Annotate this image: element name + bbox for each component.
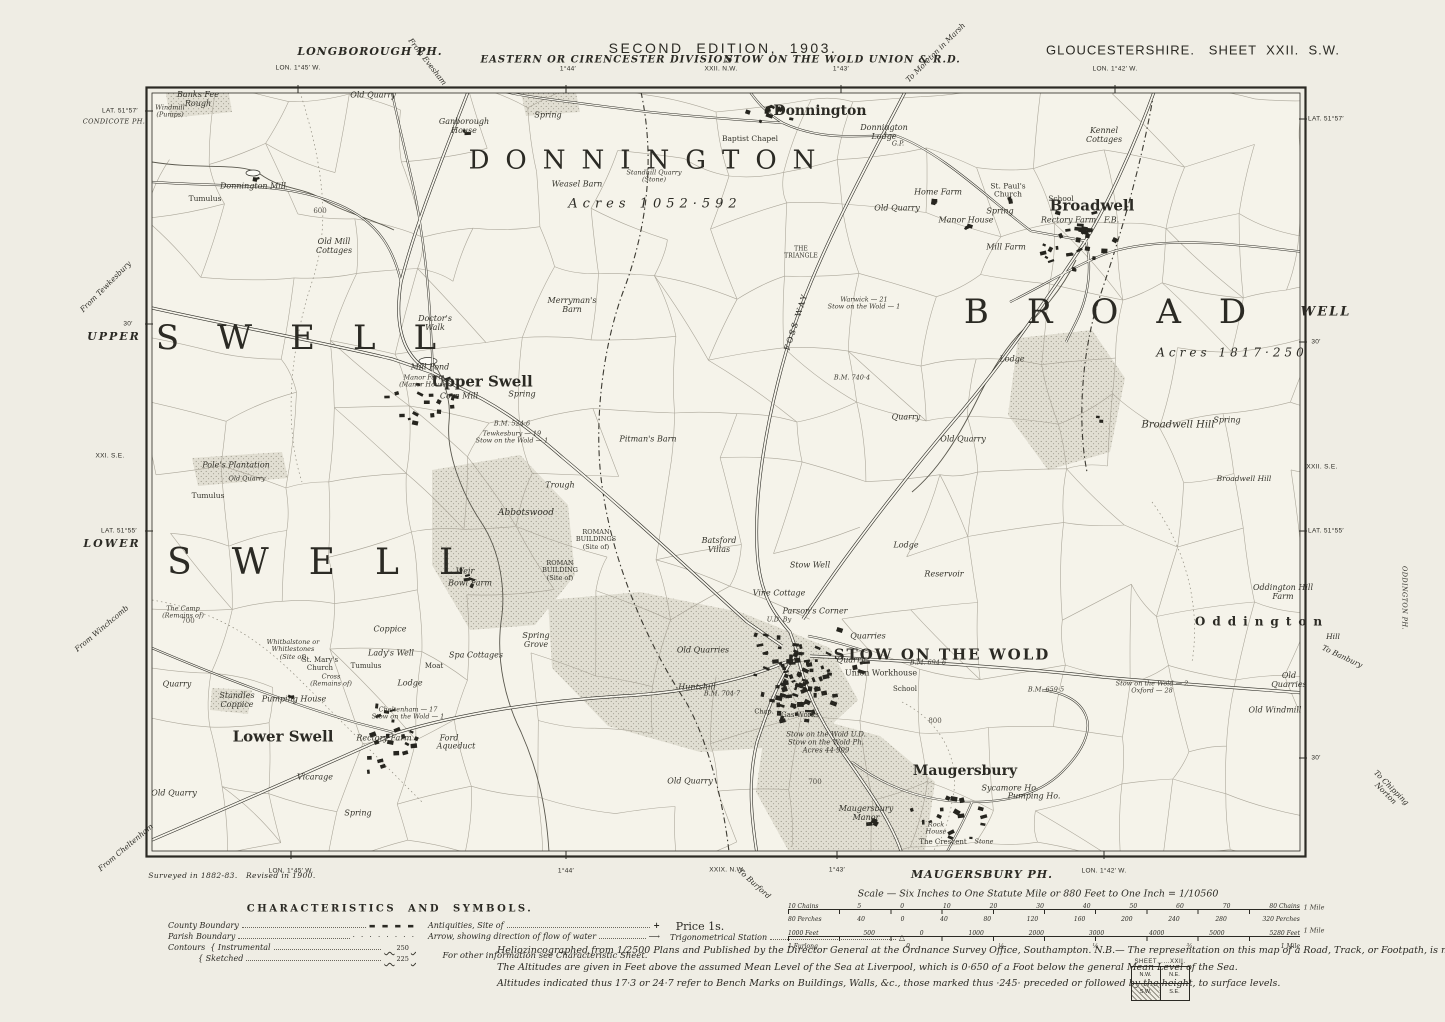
- scale-tick-0: 0: [901, 916, 905, 923]
- label-g-p: G.P.: [892, 140, 904, 147]
- label-batsford-villas: Batsford Villas: [702, 537, 737, 555]
- scale-tick-70: 70: [1223, 903, 1231, 910]
- label-old-quarries: Old Quarries: [1271, 672, 1307, 690]
- label-lat-51-55: LAT. 51°55′: [1308, 527, 1344, 534]
- footer-note-2: The Altitudes are given in Feet above th…: [497, 962, 1427, 973]
- legend-label: Arrow, showing direction of flow of wate…: [428, 932, 596, 941]
- label-chap: Chap.: [754, 708, 773, 715]
- legend-label: Contours { Instrumental: [168, 943, 271, 952]
- label-spring-grove: Spring Grove: [522, 632, 549, 650]
- scale-tick-4000: 4000: [1149, 930, 1164, 937]
- scale-tick-320-perches: 320 Perches: [1262, 916, 1299, 923]
- label-merryman-s-barn: Merryman's Barn: [548, 297, 597, 315]
- scale-tick-80-chains: 80 Chains: [1269, 903, 1299, 910]
- label-bowl-farm: Bowl Farm: [448, 580, 492, 589]
- sheet-index-diagram: SHEET……XXII. N.W.N.E. S.W.S.E.: [1128, 959, 1192, 1001]
- label-ganborough-house: Ganborough House: [439, 118, 489, 136]
- scale-tick-30: 30: [1036, 903, 1044, 910]
- label-old-quarry: Old Quarry: [940, 436, 985, 445]
- label-aqueduct: Aqueduct: [437, 743, 476, 752]
- label-lat-51-57: LAT. 51°57′: [1308, 115, 1344, 122]
- label-weasel-barn: Weasel Barn: [552, 181, 603, 190]
- label-acres-1052-592: Acres 1052·592: [568, 198, 741, 213]
- legend-symbol-parish-dots: · · · · · · · ·: [353, 932, 416, 941]
- label-cheltenham-17-stow-on-the-wold-1: Cheltenham — 17 Stow on the Wold — 1: [372, 707, 445, 722]
- scale-title: Scale — Six Inches to One Statute Mile o…: [858, 890, 1219, 901]
- label-600: 600: [313, 208, 326, 216]
- label-broad: BROAD: [964, 293, 1284, 331]
- legend-symbol-county-dash: ▬ ▬ ▬ ▬: [369, 921, 416, 930]
- label-abbotswood: Abbotswood: [498, 508, 554, 518]
- sheet-cell-nw: N.W.: [1131, 967, 1160, 984]
- scale-tick-40: 40: [940, 916, 948, 923]
- legend-leader: [507, 927, 651, 928]
- label-coppice: Coppice: [374, 626, 407, 635]
- label-tewkesbury-19-stow-on-the-wold-1: Tewkesbury — 19 Stow on the Wold — 1: [476, 431, 549, 446]
- legend-leader: [242, 927, 366, 928]
- scale-tick-500: 500: [863, 930, 874, 937]
- label-manor-farm-manor-house: Manor Farm (Manor House): [399, 375, 449, 390]
- label-old-mill-cottages: Old Mill Cottages: [316, 238, 352, 256]
- label-pole-s-plantation: Pole's Plantation: [202, 462, 270, 471]
- legend-label: Antiquities, Site of: [428, 921, 504, 930]
- scale-tick-0: 0: [900, 903, 904, 910]
- label-30: 30′: [123, 320, 132, 327]
- label-upper: UPPER: [87, 331, 141, 343]
- legend-leader: [246, 960, 381, 961]
- label-parson-s-corner: Parson's Corner: [782, 608, 847, 617]
- label-kennel-cottages: Kennel Cottages: [1086, 127, 1122, 145]
- label-donnington-mill: Donnington Mill: [220, 183, 286, 192]
- label-1-44: 1°44′: [558, 867, 574, 874]
- label-30: 30′: [1311, 338, 1320, 345]
- label-baptist-chapel: Baptist Chapel: [722, 135, 778, 143]
- label-1-43: 1°43′: [833, 65, 849, 72]
- label-vine-cottage: Vine Cottage: [753, 590, 806, 599]
- legend-row-antiquities-site-of: Antiquities, Site of+: [428, 919, 660, 930]
- label-lon-1-45-w: LON. 1°45′ W.: [269, 867, 314, 874]
- scale-feet-labels: 1000 Feet5000100020003000400050005280 Fe…: [788, 928, 1300, 936]
- label-lower: LOWER: [83, 538, 140, 550]
- label-stow-on-the-wold-2-oxford-28: Stow on the Wold — 2 Oxford — 28: [1116, 681, 1189, 696]
- label-union-workhouse: Union Workhouse: [845, 670, 917, 679]
- scale-tick-5280-feet: 5280 Feet: [1269, 930, 1300, 937]
- legend-label: County Boundary: [168, 921, 239, 930]
- label-lodge: Lodge: [893, 542, 918, 551]
- label-old-quarry: Old Quarry: [350, 92, 395, 101]
- label-condicote-ph: CONDICOTE PH.: [83, 118, 146, 125]
- parish-bottom-label: MAUGERSBURY PH.: [911, 869, 1053, 881]
- scale-tick-240: 240: [1168, 916, 1179, 923]
- label-cross-remains-of: Cross (Remains of): [310, 674, 352, 689]
- legend-title: CHARACTERISTICS AND SYMBOLS.: [247, 903, 533, 914]
- scale-tick-50: 50: [1130, 903, 1138, 910]
- label-swell: SWELL: [167, 543, 503, 583]
- label-old-quarry: Old Quarry: [229, 475, 266, 482]
- scale-tick-5000: 5000: [1209, 930, 1224, 937]
- label-1-44: 1°44′: [560, 65, 576, 72]
- label-vicarage: Vicarage: [297, 774, 333, 783]
- legend-row-parish-boundary: Parish Boundary· · · · · · · ·: [168, 930, 416, 941]
- map-content-layer: [132, 73, 1383, 878]
- scale-tick-10-chains: 10 Chains: [788, 903, 818, 910]
- label-pitman-s-barn: Pitman's Barn: [619, 436, 676, 445]
- label-pumping-ho: Pumping Ho.: [1008, 793, 1061, 802]
- label-b-m-694-6: B.M. 694·6: [910, 659, 946, 666]
- label-spring: Spring: [344, 810, 371, 819]
- label-lon-1-42-w: LON. 1°42′ W.: [1082, 867, 1127, 874]
- label-quarry: Quarry: [837, 657, 866, 666]
- label-mill-pond: Mill Pond: [411, 364, 450, 373]
- scale-tick-60: 60: [1176, 903, 1184, 910]
- legend-symbol-antiquity-cross: +: [653, 920, 660, 930]
- label-pumping-house: Pumping House: [262, 696, 326, 705]
- label-lodge: Lodge: [397, 680, 422, 689]
- label-old-quarry: Old Quarry: [667, 778, 712, 787]
- scale-tick-40: 40: [857, 916, 865, 923]
- label-quarry: Quarry: [892, 414, 921, 423]
- label-tumulus: Tumulus: [189, 195, 222, 203]
- label-standles-coppice: Standles Coppice: [219, 692, 254, 710]
- legend-column-boundaries: County Boundary▬ ▬ ▬ ▬Parish Boundary· ·…: [168, 919, 416, 963]
- label-b-m-740-4: B.M. 740·4: [834, 374, 870, 381]
- label-lat-51-55: LAT. 51°55′: [101, 527, 137, 534]
- scale-tick-40: 40: [1083, 903, 1091, 910]
- legend-row-contours-instrumental: Contours { Instrumental 250: [168, 941, 416, 952]
- label-quarry: Quarry: [163, 681, 192, 690]
- scale-tick-120: 120: [1027, 916, 1038, 923]
- label-oddington: Oddington: [1195, 615, 1329, 628]
- legend-row-county-boundary: County Boundary▬ ▬ ▬ ▬: [168, 919, 416, 930]
- scale-tick-80-perches: 80 Perches: [788, 916, 822, 923]
- label-warwick-21-stow-on-the-wold-1: Warwick — 21 Stow on the Wold — 1: [828, 297, 901, 312]
- scale-bars: 10 Chains501020304050607080 Chains 80 Pe…: [788, 901, 1300, 949]
- label-lodge: Lodge: [999, 356, 1024, 365]
- label-home-farm: Home Farm: [914, 189, 962, 198]
- label-800: 800: [928, 718, 941, 726]
- label-tumulus: Tumulus: [192, 492, 225, 500]
- sheet-cell-ne: N.E.: [1160, 967, 1189, 984]
- label-maugersbury-manor: Maugersbury Manor: [839, 805, 894, 823]
- label-spring: Spring: [1213, 417, 1240, 426]
- scale-tick-3000: 3000: [1089, 930, 1104, 937]
- scale-chains-labels: 10 Chains501020304050607080 Chains: [788, 901, 1300, 909]
- label-old-quarries: Old Quarries: [677, 647, 729, 656]
- label-lat-51-57: LAT. 51°57′: [102, 107, 138, 114]
- label-donnington: Donnington: [773, 104, 866, 120]
- label-gas-works: Gas Works: [781, 712, 819, 720]
- scale-tick-200: 200: [1121, 916, 1132, 923]
- sheet-index-title: SHEET……XXII.: [1128, 959, 1192, 965]
- label-the-triangle: THE TRIANGLE: [784, 246, 818, 259]
- legend-symbol-contour-wave: 225: [384, 954, 416, 963]
- label-lady-s-well: Lady's Well: [368, 650, 414, 659]
- label-broadwell-hill: Broadwell Hill: [1142, 419, 1215, 430]
- label-xxi-s-e: XXI. S.E.: [95, 452, 124, 459]
- label-tumulus: Tumulus: [351, 663, 382, 671]
- label-b-m-659-5: B.M. 659·5: [1028, 686, 1064, 693]
- label-1-mile: 1 Mile: [1304, 904, 1325, 911]
- scale-tick-1000: 1000: [969, 930, 984, 937]
- sheet-index-grid: N.W.N.E. S.W.S.E.: [1131, 966, 1190, 1001]
- scale-tick-2000: 2000: [1029, 930, 1044, 937]
- legend-leader: [238, 938, 349, 939]
- label-b-m-524-6: B.M. 524·6: [494, 420, 530, 427]
- label-mill-farm: Mill Farm: [986, 244, 1026, 253]
- label-school: School: [1048, 195, 1074, 203]
- scale-tick-0: 0: [920, 930, 924, 937]
- label-1-43: 1°43′: [829, 866, 845, 873]
- label-stone: Stone: [974, 838, 993, 845]
- legend-leader: [599, 938, 645, 939]
- label-weir: Weir: [456, 568, 475, 577]
- label-700: 700: [808, 779, 821, 787]
- label-b-m-704-7: B.M. 704·7: [704, 690, 740, 697]
- scale-tick-80: 80: [983, 916, 991, 923]
- label-oddington-ph: ODDINGTON PH.: [1400, 566, 1407, 630]
- legend-column-antiquities: Antiquities, Site of+Arrow, showing dire…: [428, 919, 660, 941]
- label-windmill-pumps: Windmill (Pumps): [155, 105, 184, 120]
- label-acres-1817-250: Acres 1817·250: [1156, 346, 1307, 359]
- legend-symbol-contour-wave: 250: [384, 943, 416, 952]
- legend-leader: [274, 949, 382, 950]
- label-lon-1-42-w: LON. 1°42′ W.: [1093, 65, 1138, 72]
- footer-note-3: Altitudes indicated thus 17·3 or 24·7 re…: [497, 978, 1427, 989]
- label-quarries: Quarries: [850, 633, 886, 642]
- sheet-cell-se: S.E.: [1160, 984, 1189, 1001]
- label-standhill-quarry-stone: Standhill Quarry (Stone): [626, 170, 681, 185]
- label-maugersbury: Maugersbury: [913, 764, 1017, 780]
- label-xxii-s-e: XXII. S.E.: [1306, 463, 1337, 470]
- sheet-cell-sw: S.W.: [1131, 984, 1160, 1001]
- scale-tick-5: 5: [857, 903, 861, 910]
- scale-tick-1000-feet: 1000 Feet: [788, 930, 819, 937]
- label-reservoir: Reservoir: [924, 571, 963, 580]
- label-st-paul-s-church: St. Paul's Church: [990, 183, 1025, 200]
- label-old-quarry: Old Quarry: [874, 205, 919, 214]
- legend-row-arrow-showing-direction-of-flow-of-water: Arrow, showing direction of flow of wate…: [428, 930, 660, 941]
- label-moat: Moat: [425, 663, 443, 671]
- label-spa-cottages: Spa Cottages: [449, 652, 503, 661]
- label-roman-buildings-site-of: ROMAN BUILDINGS (Site of): [576, 529, 616, 551]
- label-the-crescent: The Crescent: [919, 839, 966, 847]
- label-broadwell-hill: Broadwell Hill: [1217, 475, 1272, 483]
- os-map-sheet: SECOND EDITION, 1903. GLOUCESTERSHIRE. S…: [0, 0, 1445, 1022]
- label-lon-1-45-w: LON. 1°45′ W.: [276, 64, 321, 71]
- footer-note-1: Heliozincographed from 1/2500 Plans and …: [497, 945, 1427, 956]
- label-30: 30′: [1311, 754, 1320, 761]
- label-stow-well: Stow Well: [790, 562, 830, 571]
- label-roman-building-site-of: ROMAN BUILDING (Site of): [542, 560, 578, 582]
- label-xxii-n-w: XXII. N.W.: [705, 65, 738, 72]
- label-doctor-s-walk: Doctor's Walk: [418, 315, 452, 333]
- label-old-quarry: Old Quarry: [151, 790, 196, 799]
- label-rectory-farm-f-b: Rectory Farm F.B.: [1041, 217, 1119, 226]
- legend-label: Parish Boundary: [168, 932, 235, 941]
- label-manor-house: Manor House: [938, 217, 993, 226]
- label-well: WELL: [1301, 306, 1352, 321]
- label-spring: Spring: [534, 112, 561, 121]
- label-school: School: [893, 686, 917, 694]
- legend-label: Trigonometrical Station: [670, 933, 767, 942]
- label-lower-swell: Lower Swell: [233, 729, 334, 746]
- legend-symbol-flow-arrow: ⟶: [649, 932, 660, 941]
- legend-label: { Sketched: [168, 954, 243, 963]
- label-u-d-by: U.D. By: [767, 616, 792, 623]
- label-hill: Hill: [1326, 633, 1340, 641]
- label-rectory-farm: Rectory Farm: [356, 735, 411, 744]
- scale-perches-labels: 80 Perches4004080120160200240280320 Perc…: [788, 914, 1300, 922]
- label-700: 700: [181, 618, 194, 626]
- county-sheet-title: GLOUCESTERSHIRE. SHEET XXII. S.W.: [1046, 44, 1340, 59]
- label-old-windmill: Old Windmill: [1249, 707, 1302, 716]
- label-st-mary-s-church: St. Mary's Church: [302, 657, 338, 673]
- label-rock-house: Rock House: [926, 822, 947, 837]
- label-trough: Trough: [545, 482, 574, 491]
- label-oddington-hill-farm: Oddington Hill Farm: [1253, 584, 1313, 602]
- label-corn-mill: Corn Mill: [440, 393, 478, 402]
- scale-tick-10: 10: [943, 903, 951, 910]
- label-spring: Spring: [508, 391, 535, 400]
- division-label: EASTERN OR CIRENCESTER DIVISION: [480, 54, 733, 65]
- label-stow-on-the-wold-u-d-stow-on-the-wold-ph: Stow on the Wold U.D. Stow on the Wold P…: [786, 731, 866, 754]
- legend-row-sketched: { Sketched 225: [168, 952, 416, 963]
- scale-tick-280: 280: [1215, 916, 1226, 923]
- scale-tick-20: 20: [990, 903, 998, 910]
- label-1-mile: 1 Mile: [1304, 927, 1325, 934]
- scale-tick-160: 160: [1074, 916, 1085, 923]
